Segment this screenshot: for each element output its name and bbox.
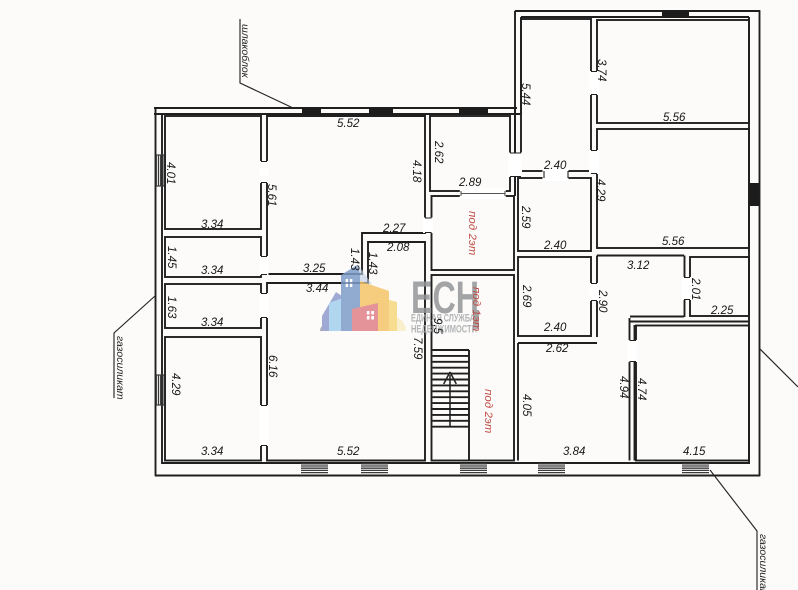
svg-text:под 1эт: под 1эт bbox=[470, 287, 482, 332]
svg-text:4.15: 4.15 bbox=[683, 446, 706, 458]
svg-text:3.74: 3.74 bbox=[595, 59, 607, 81]
svg-text:3.34: 3.34 bbox=[201, 446, 223, 458]
svg-text:2.62: 2.62 bbox=[545, 343, 569, 355]
svg-text:2.08: 2.08 bbox=[386, 242, 410, 254]
svg-text:под 2эт: под 2эт bbox=[466, 211, 478, 256]
svg-text:5.56: 5.56 bbox=[663, 112, 686, 124]
svg-text:5.52: 5.52 bbox=[337, 118, 360, 130]
svg-text:5.56: 5.56 bbox=[662, 236, 685, 248]
svg-text:1.43: 1.43 bbox=[348, 248, 360, 271]
svg-text:3.84: 3.84 bbox=[563, 446, 585, 458]
svg-text:4.29: 4.29 bbox=[169, 373, 181, 396]
svg-text:газосиликат: газосиликат bbox=[757, 534, 769, 590]
svg-text:2.89: 2.89 bbox=[458, 177, 482, 189]
svg-text:4.05: 4.05 bbox=[520, 394, 532, 417]
svg-text:7.59: 7.59 bbox=[411, 337, 423, 360]
svg-text:5.44: 5.44 bbox=[519, 83, 531, 105]
svg-text:газосиликат: газосиликат bbox=[114, 336, 126, 400]
svg-text:9,5: 9,5 bbox=[431, 318, 443, 335]
svg-text:4.29: 4.29 bbox=[594, 179, 606, 202]
svg-text:2.25: 2.25 bbox=[710, 305, 734, 317]
svg-text:НЕДВИЖИМОСТИ: НЕДВИЖИМОСТИ bbox=[411, 324, 477, 336]
svg-text:3.34: 3.34 bbox=[201, 317, 223, 329]
svg-text:2.40: 2.40 bbox=[543, 322, 567, 334]
svg-text:3.12: 3.12 bbox=[627, 260, 650, 272]
svg-text:2.40: 2.40 bbox=[543, 240, 567, 252]
svg-text:2.59: 2.59 bbox=[519, 205, 531, 229]
svg-text:2.27: 2.27 bbox=[382, 223, 406, 235]
svg-text:4.94: 4.94 bbox=[617, 376, 629, 398]
svg-text:5.61: 5.61 bbox=[265, 184, 277, 206]
svg-text:2.69: 2.69 bbox=[520, 284, 532, 308]
svg-text:2.62: 2.62 bbox=[432, 140, 444, 164]
svg-text:под 2эт: под 2эт bbox=[482, 389, 494, 434]
svg-text:4.18: 4.18 bbox=[410, 160, 422, 183]
svg-text:6.16: 6.16 bbox=[266, 355, 278, 378]
svg-text:4.01: 4.01 bbox=[164, 162, 176, 184]
svg-text:3.34: 3.34 bbox=[201, 265, 223, 277]
svg-text:3.44: 3.44 bbox=[306, 283, 328, 295]
svg-text:2.01: 2.01 bbox=[689, 277, 701, 300]
svg-text:3.34: 3.34 bbox=[201, 219, 223, 231]
svg-text:4.74: 4.74 bbox=[635, 378, 647, 400]
svg-text:1.63: 1.63 bbox=[165, 296, 177, 319]
svg-text:2.40: 2.40 bbox=[543, 160, 567, 172]
svg-text:3.25: 3.25 bbox=[303, 263, 326, 275]
svg-text:1.45: 1.45 bbox=[165, 246, 177, 269]
svg-text:5.52: 5.52 bbox=[337, 446, 360, 458]
svg-text:1.43: 1.43 bbox=[366, 252, 378, 275]
svg-text:шлакоблок: шлакоблок bbox=[239, 24, 251, 79]
svg-text:2.90: 2.90 bbox=[596, 289, 608, 313]
